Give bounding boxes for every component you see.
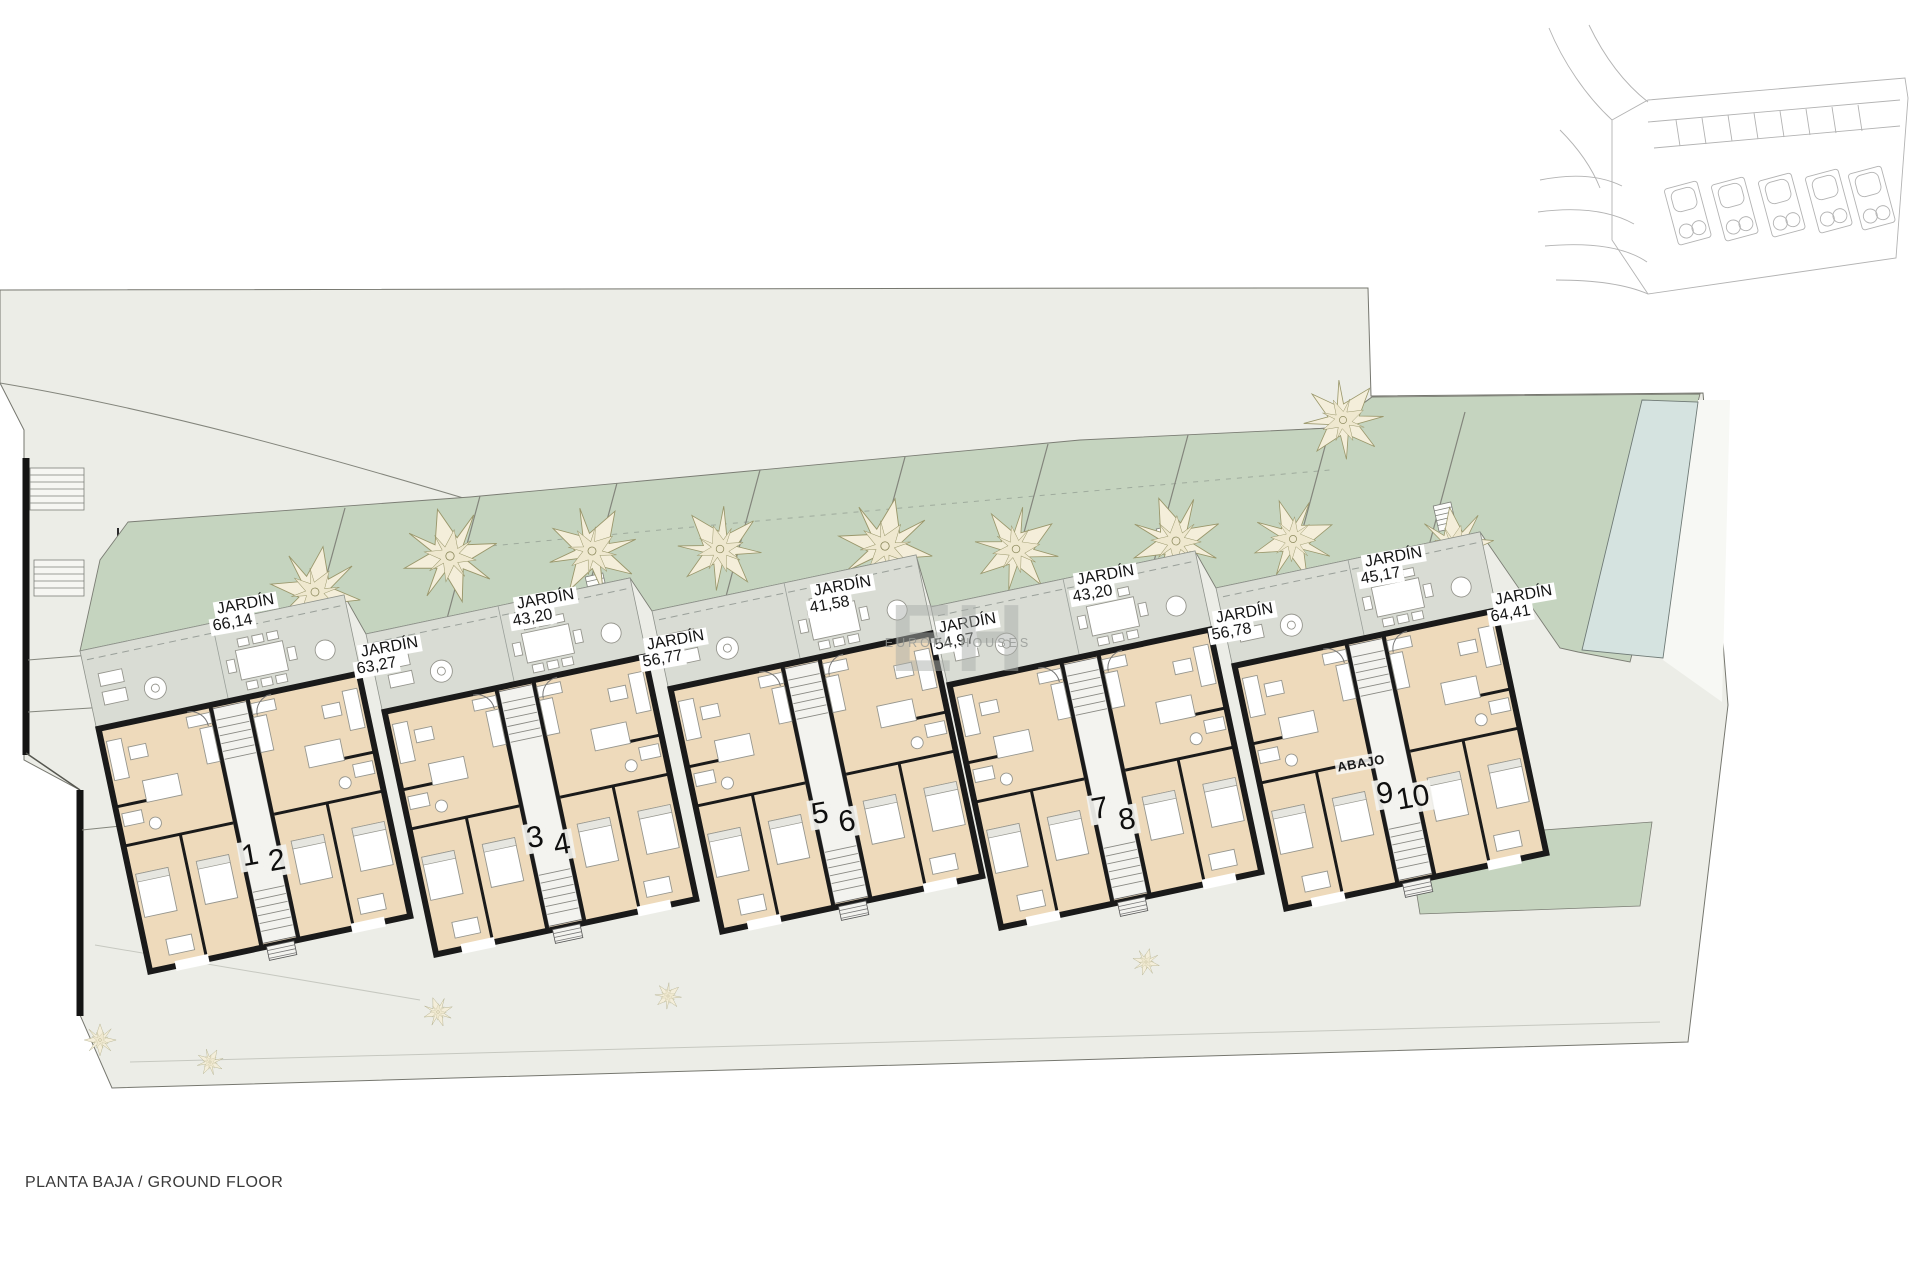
inset-unit [1848,166,1896,231]
floor-title: PLANTA BAJA / GROUND FLOOR [25,1174,283,1192]
site-overview-inset [1538,25,1908,294]
inset-unit [1711,177,1759,242]
inset-unit [1758,173,1806,238]
inset-unit [1805,169,1853,234]
inset-unit [1664,181,1712,246]
unit-number-10: 10 [1391,780,1435,816]
ground-floor-plan-page: .t-outer{fill:#f4eeda;stroke:#9a976b;str… [0,0,1920,1280]
